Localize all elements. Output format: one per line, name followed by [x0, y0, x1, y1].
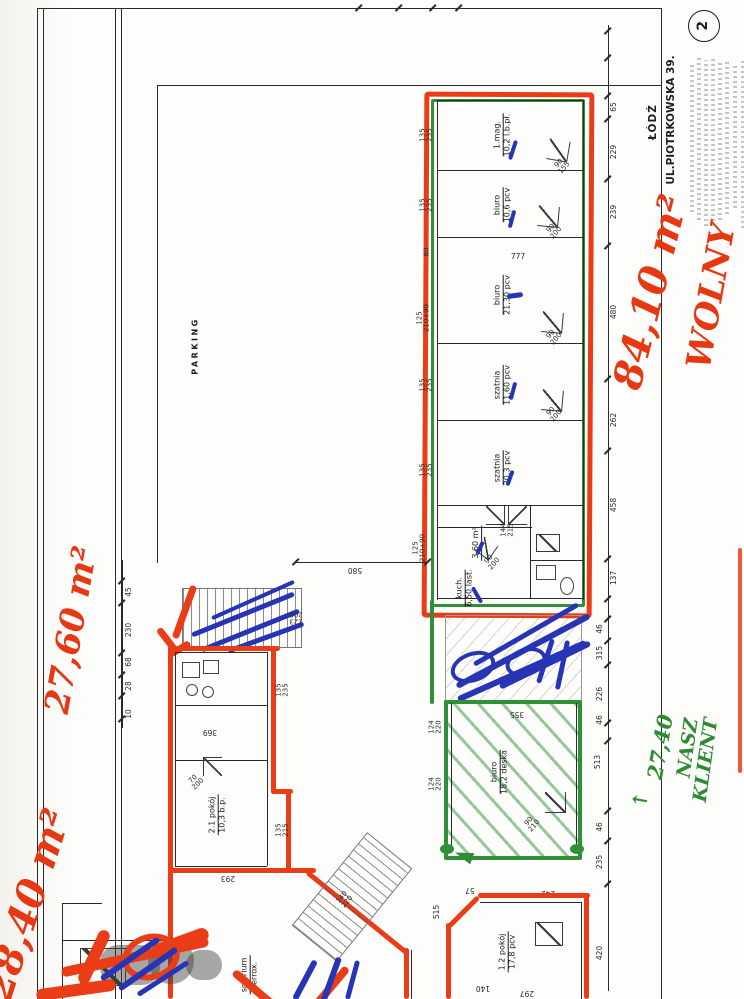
wall-line: [530, 505, 531, 599]
wall-line: [480, 902, 582, 903]
floor-plan-scan: 2 ŁÓDŹ UL.PIOTRKOWSKA 39. PARKING 65 229…: [0, 0, 744, 999]
wall-line: [437, 100, 438, 600]
marker-outline-building-b-right: [271, 646, 276, 794]
door-label: 123 200: [289, 610, 302, 625]
window-label: 125 210+90: [417, 304, 432, 332]
stamp-text-line: [725, 62, 729, 214]
wall-line: [530, 560, 584, 561]
dim-line-580: [295, 562, 428, 563]
stamp-text-line: [718, 60, 722, 220]
door-swing: [203, 757, 222, 776]
dimension-label: 420: [596, 946, 604, 960]
marker-outline-zone-red-left: [446, 923, 451, 999]
window-height: 220: [436, 720, 443, 733]
window-label: 135 235: [420, 198, 435, 211]
dimension-label: 513: [594, 755, 602, 769]
door-height: 200: [289, 610, 302, 617]
dimension-label: 235: [596, 855, 604, 869]
dimension-label: 65: [610, 102, 618, 112]
wall-line: [267, 652, 268, 866]
window-height: 235: [427, 463, 434, 476]
room-label: 1.2 pokój 17,8 pcv: [499, 932, 518, 973]
dimension-label: 46: [596, 624, 604, 634]
toilet-fixture: [560, 577, 574, 595]
marker-outline-zone-red-right: [584, 893, 589, 999]
dimension-label: 45: [125, 587, 133, 597]
window-label: 124 220: [429, 777, 444, 790]
dim-chain-left-line: [122, 560, 123, 728]
dimension-label: 226: [596, 687, 604, 701]
wall-line: [175, 652, 176, 866]
handwritten-area-left: 27,60 m²: [39, 543, 105, 716]
shower-fixture: [536, 534, 560, 552]
dimension-label: 10: [125, 709, 133, 719]
kitchen-fixture: [182, 662, 200, 678]
room-area: 18,2 deska: [501, 750, 510, 794]
dimension-label: 239: [610, 205, 618, 219]
green-marker-connector: [430, 600, 434, 704]
dimension-label: 480: [610, 305, 618, 319]
window-label: 135 235: [276, 683, 291, 696]
sink-fixture: [536, 565, 556, 580]
door-swing: [486, 506, 505, 525]
window-label: 135 215: [276, 823, 291, 836]
room-area: 17,8 pcv: [509, 932, 518, 973]
wall-line: [437, 527, 532, 528]
dimension-label: 140: [476, 984, 490, 992]
green-marker-blob: [570, 844, 584, 854]
plan-mark-777: 777: [511, 253, 525, 261]
handwritten-status-wolny: WOLNY: [681, 220, 743, 371]
window-label: 135 235: [420, 378, 435, 391]
marker-outline-zone-red-diag: [447, 895, 480, 928]
dimension-label: 297: [520, 989, 534, 997]
green-marker-blob: [440, 844, 454, 854]
dimension-label: 57: [465, 886, 475, 894]
marker-outline-zone-red-top: [478, 893, 590, 898]
wall-line: [576, 703, 577, 853]
wall-line: [175, 866, 267, 867]
marker-outline-building-b-top: [168, 646, 280, 651]
room-label: 2.1 pokój 10,3 b.p.: [209, 795, 228, 836]
wall-line: [411, 950, 412, 999]
window-height: 235: [283, 683, 290, 696]
window-height: 210+90: [424, 304, 431, 332]
dimension-label: 46: [596, 715, 604, 725]
dimension-label: 262: [610, 413, 618, 427]
stamp-text-line: [711, 58, 715, 226]
door-swing: [508, 506, 527, 525]
sheet-number: 2: [696, 21, 711, 31]
kitchen-fixture: [202, 686, 214, 698]
wall-line: [175, 705, 267, 706]
window-height: 235: [427, 198, 434, 211]
dimension-label: 315: [596, 646, 604, 660]
blue-scribble: [345, 960, 360, 999]
window-label: 124 220: [429, 720, 444, 733]
wall-line: [581, 902, 582, 999]
dimension-label: 46: [596, 822, 604, 832]
parking-label: PARKING: [192, 317, 201, 374]
red-scribble: [36, 978, 117, 999]
blue-scribble: [292, 959, 318, 999]
dimension-label: 230: [125, 623, 133, 637]
dimension-label: 515: [433, 905, 441, 919]
window-label: 355: [510, 710, 524, 718]
frame-left-line-inner: [115, 8, 116, 999]
door-width: 123: [289, 617, 302, 624]
title-street: UL.PIOTRKOWSKA 39.: [666, 55, 678, 184]
dimension-label: 369: [203, 728, 217, 736]
window-height: 215: [283, 823, 290, 836]
dimension-label: 137: [610, 571, 618, 585]
kitchen-fixture: [203, 660, 219, 674]
handwritten-green-arrow: ↑: [628, 790, 653, 810]
wall-line: [451, 703, 452, 853]
dimension-label: 28: [125, 681, 133, 691]
window-height: 235: [427, 378, 434, 391]
frame-top-line: [37, 8, 662, 9]
title-city: ŁÓDŹ: [648, 104, 660, 140]
kitchen-fixture: [186, 684, 198, 696]
door-swing: [545, 792, 566, 813]
wall-line: [62, 903, 102, 904]
room-label: 1.mag. 10,2 l.b.pł.: [494, 114, 513, 157]
marker-outline-building-b-bottom: [168, 868, 316, 873]
dimension-label: 68: [125, 657, 133, 667]
window-height: 210+90: [420, 534, 427, 562]
room-label: biuro 18,2 deska: [491, 750, 510, 794]
wall-line: [583, 100, 584, 600]
window-height: 220: [436, 777, 443, 790]
site-top-line: [157, 85, 661, 86]
stamp-text-line: [690, 62, 694, 212]
wall-line: [175, 652, 267, 653]
wall-line: [437, 237, 584, 238]
window-label: 135 235: [420, 128, 435, 141]
window-width: 80: [423, 248, 430, 257]
dimension-label: 229: [610, 145, 618, 159]
red-margin-stroke: [738, 548, 742, 773]
stamp-text-line: [733, 64, 737, 208]
marker-outline-bottom-right: [404, 948, 409, 999]
handwritten-area-green: 27,40: [643, 713, 677, 782]
wall-line: [62, 903, 63, 999]
window-height: 235: [427, 128, 434, 141]
window-label: 80: [423, 248, 430, 257]
watermark-blob: [186, 950, 222, 980]
frame-right-line: [661, 8, 662, 999]
wall-line: [437, 420, 584, 421]
room-area: 10,3 b.p.: [219, 795, 228, 836]
sheet-number-badge: 2: [688, 10, 720, 42]
window-label: 125 210+90: [413, 534, 428, 562]
wall-line: [437, 100, 584, 101]
door-label: 144 215: [501, 523, 516, 536]
dimension-label: 580: [348, 566, 362, 574]
stamp-text-line: [697, 58, 701, 220]
stamp-text-line: [704, 60, 708, 226]
site-left-line: [157, 85, 158, 563]
door-height: 215: [508, 523, 515, 536]
window-symbol: [535, 922, 563, 946]
dimension-label: 293: [221, 874, 235, 882]
wall-line: [437, 343, 584, 344]
frame-left-line-inner2: [121, 8, 122, 999]
dimension-label: 458: [610, 498, 618, 512]
window-label: 135 235: [420, 463, 435, 476]
marker-outline-zone-green: [444, 700, 582, 860]
